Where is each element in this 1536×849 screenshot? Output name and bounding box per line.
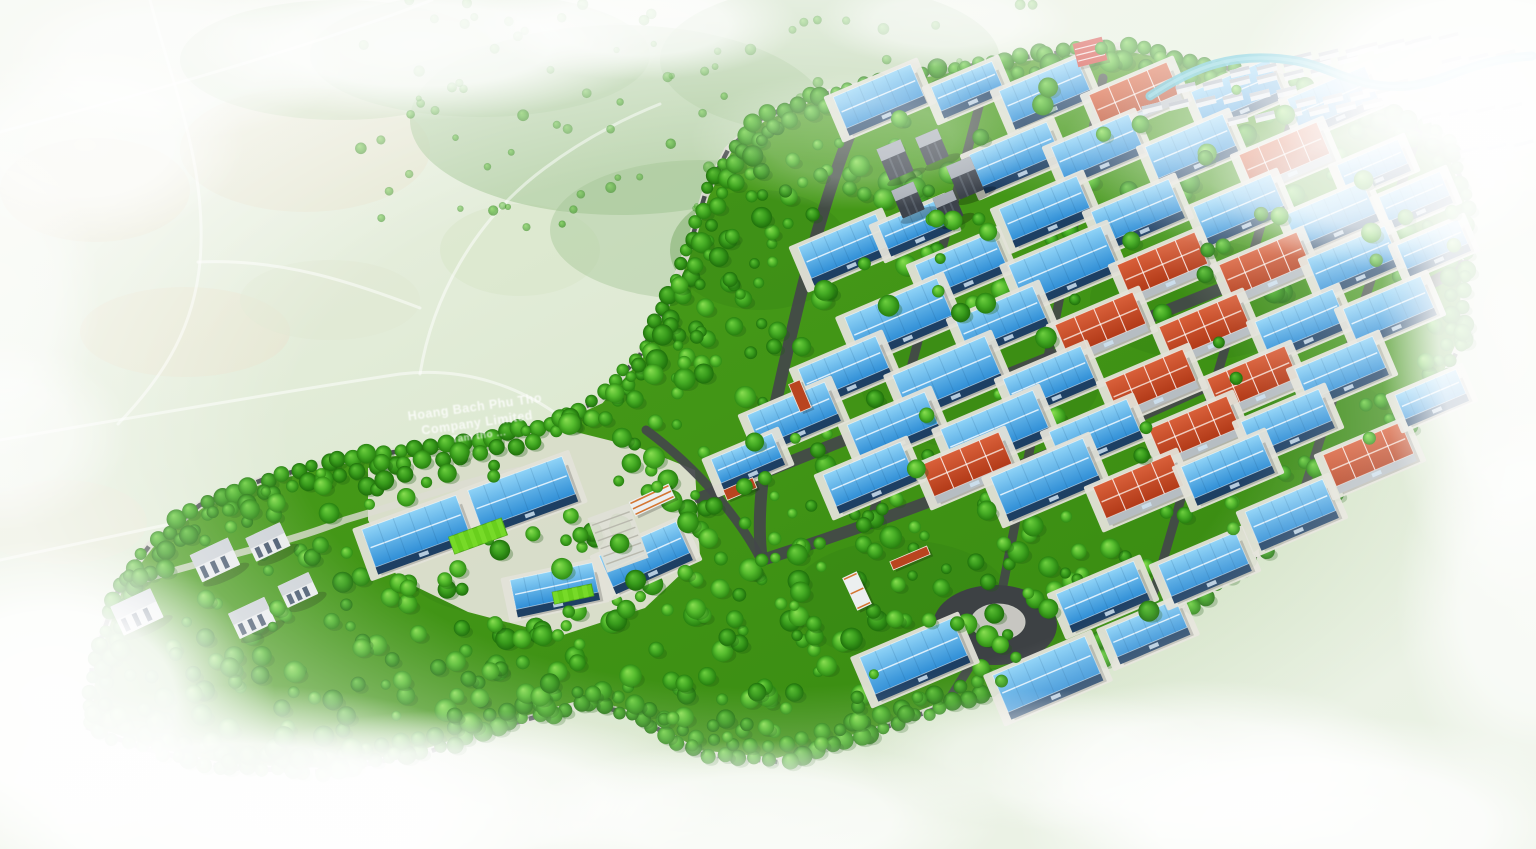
- industrial-park-scene: [0, 0, 1536, 849]
- edge-haze: [0, 0, 1536, 849]
- aerial-masterplan-render: Hoang Bach Phu Tho Company Limited Tam t…: [0, 0, 1536, 849]
- fog-clouds: [0, 0, 1536, 849]
